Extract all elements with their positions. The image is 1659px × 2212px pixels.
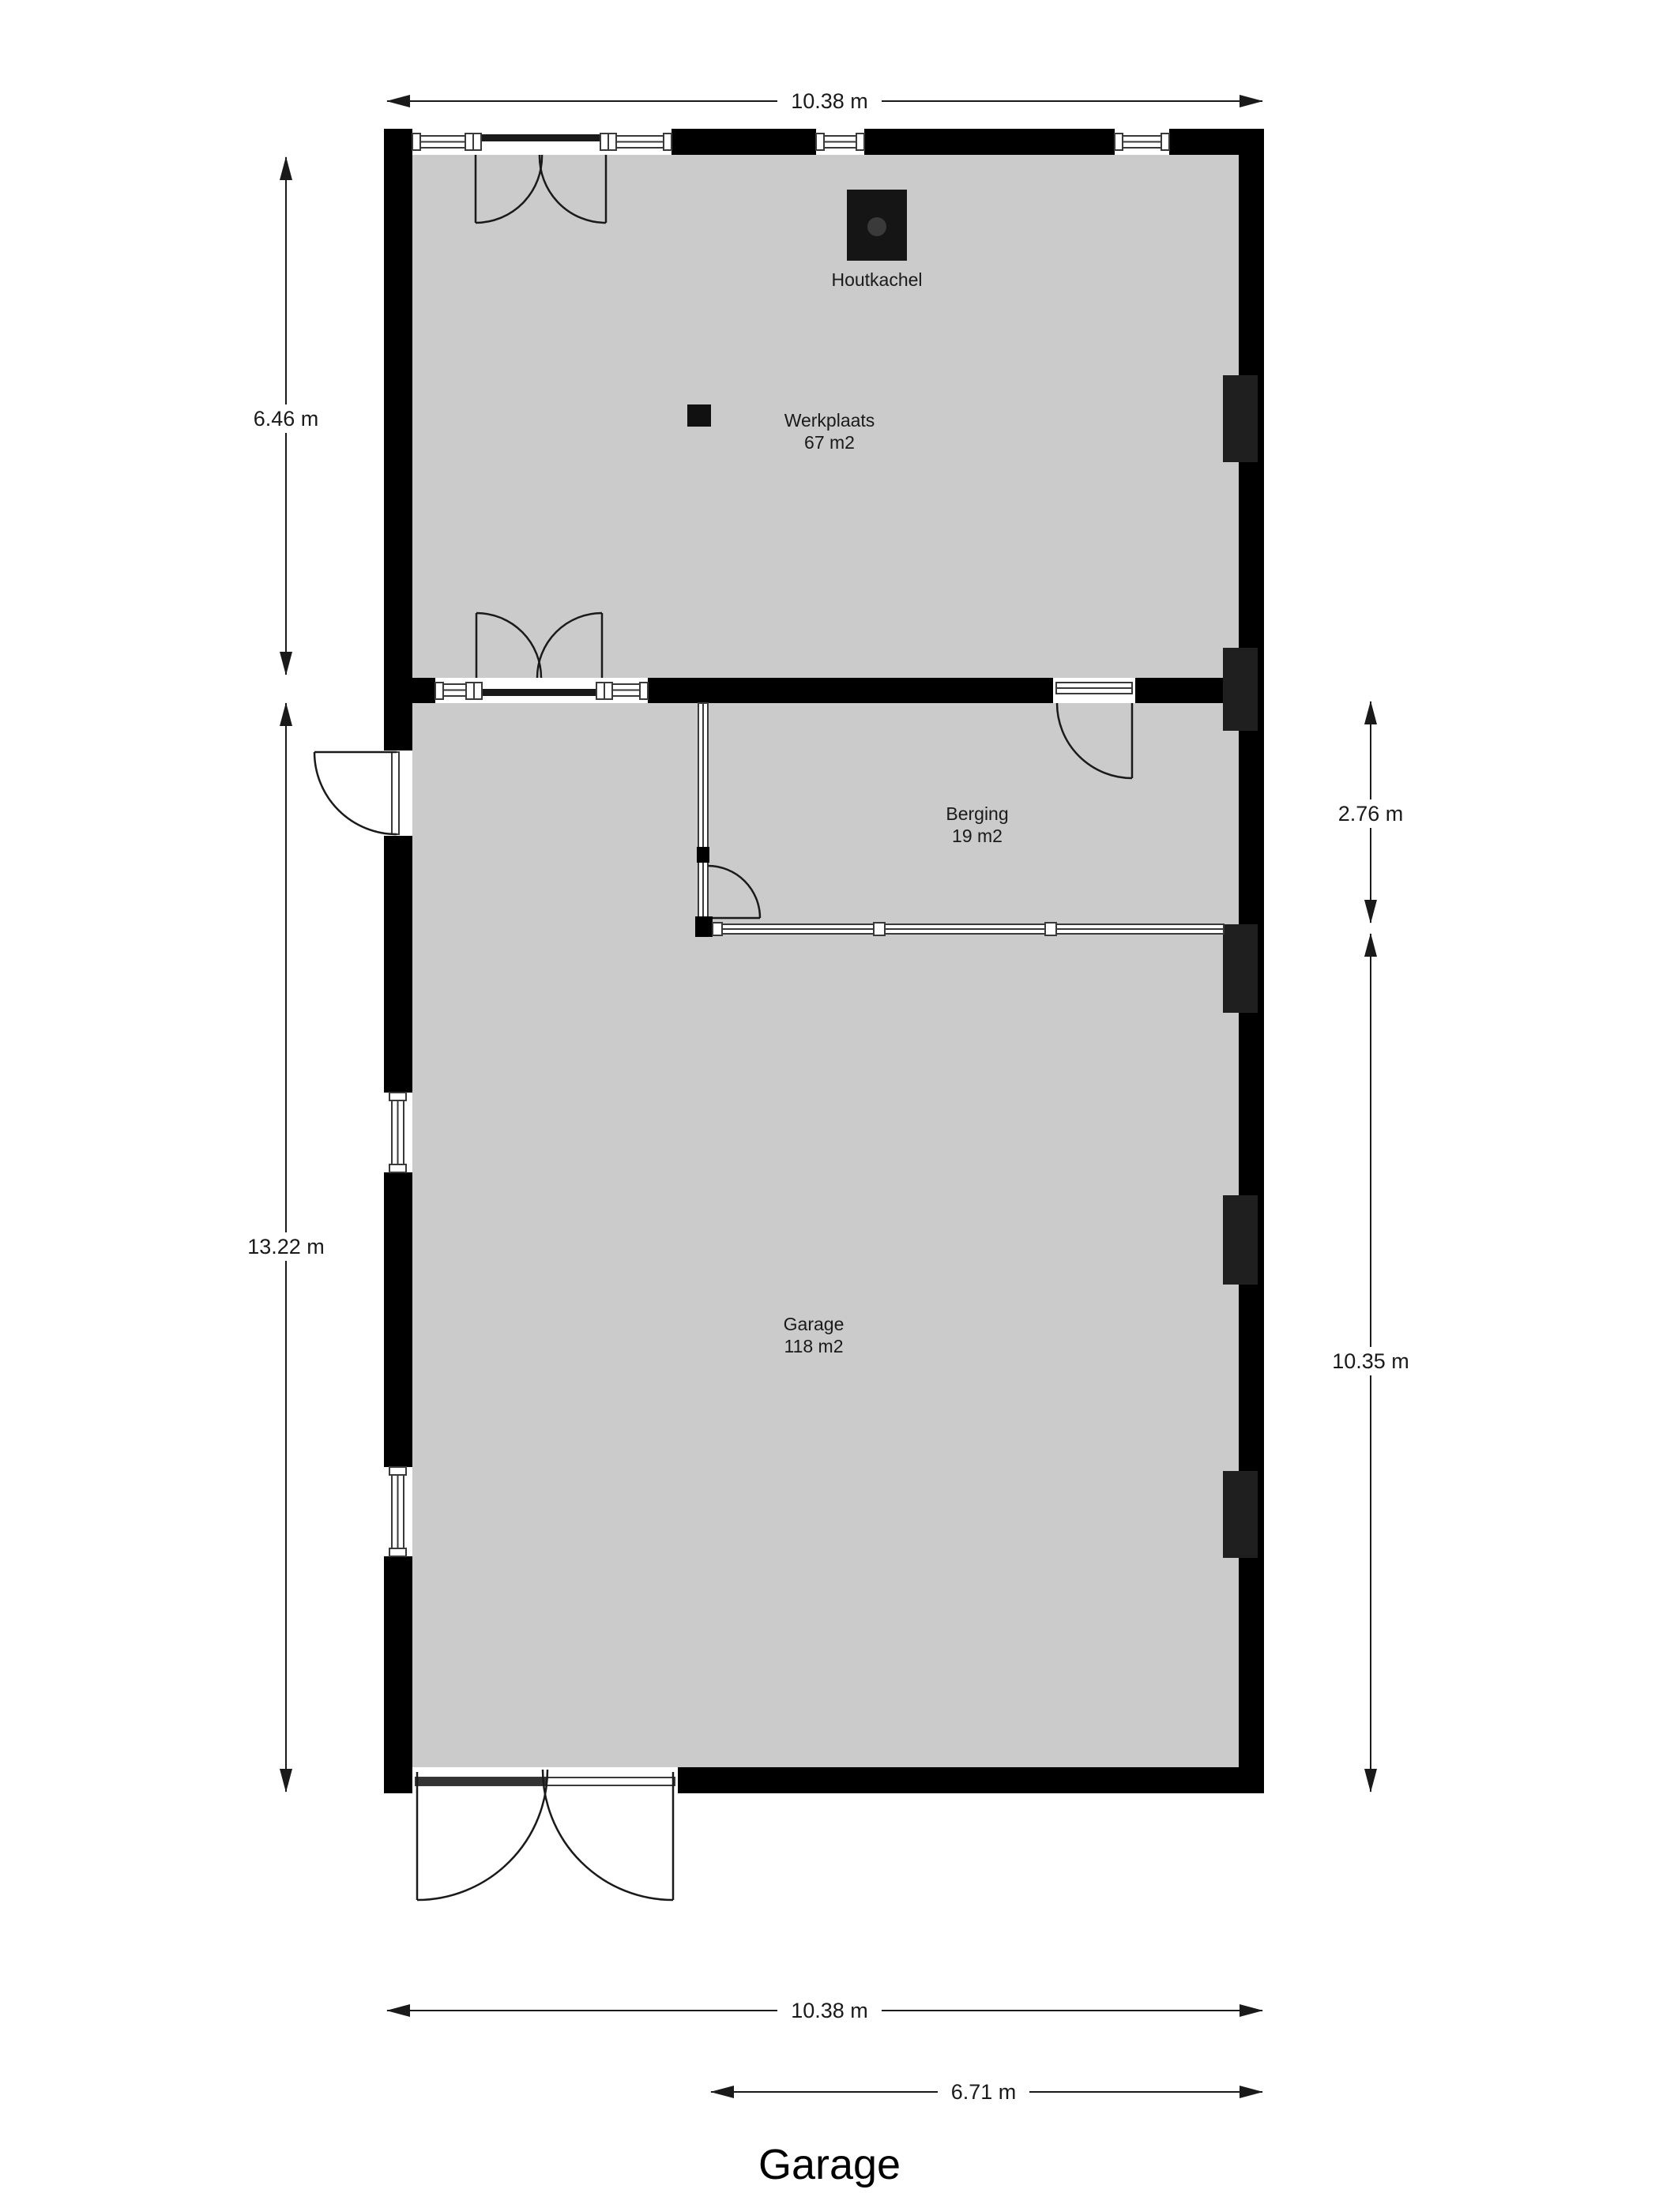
dimension-label: 6.46 m	[254, 407, 319, 431]
wall-left-seg-4	[384, 1556, 412, 1793]
garage-double-door	[412, 1767, 678, 1900]
pilaster-2	[1223, 648, 1258, 731]
pilaster-3	[1223, 924, 1258, 1013]
pilaster-1	[1223, 375, 1258, 462]
wall-top-seg-2	[864, 129, 1115, 155]
pilaster-4	[1223, 1195, 1258, 1285]
left-wall-door	[314, 750, 412, 836]
room-area: 19 m2	[952, 826, 1003, 846]
room-name: Werkplaats	[784, 410, 875, 431]
window	[412, 129, 473, 155]
dimension-label: 2.76 m	[1338, 802, 1404, 826]
window	[816, 129, 864, 155]
wall-left-seg-2	[384, 836, 412, 1093]
partition-post	[697, 847, 709, 863]
wall-middle-seg-1	[384, 678, 435, 703]
page-title: Garage	[758, 2141, 901, 2188]
dimension-bottom-width: 10.38 m	[387, 1996, 1262, 2025]
wall-left-seg-3	[384, 1172, 412, 1467]
dimension-label: 10.38 m	[791, 89, 868, 113]
wood-stove-flue	[867, 217, 886, 236]
dimension-label: 6.71 m	[951, 2080, 1017, 2104]
dimension-label: 10.35 m	[1332, 1349, 1409, 1373]
dimension-left-upper: 6.46 m	[243, 157, 329, 675]
wood-stove-label: Houtkachel	[831, 269, 922, 290]
dimension-right-upper: 2.76 m	[1328, 702, 1413, 923]
wall-bottom-corner-left	[384, 1767, 412, 1793]
window	[608, 129, 671, 155]
room-area: 67 m2	[804, 432, 855, 453]
window	[435, 678, 474, 703]
wall-top-seg-1	[671, 129, 816, 155]
partition-corner-post	[695, 916, 713, 937]
dimension-label: 10.38 m	[791, 1999, 868, 2022]
dimension-left-lower: 13.22 m	[239, 703, 333, 1792]
dimension-top-width: 10.38 m	[387, 87, 1262, 115]
wall-left-seg-1	[384, 129, 412, 750]
window	[604, 678, 648, 703]
room-name: Garage	[784, 1314, 845, 1334]
dimension-bottom-garage-section: 6.71 m	[711, 2078, 1262, 2106]
window	[384, 1093, 412, 1172]
dimension-right-lower: 10.35 m	[1323, 934, 1418, 1792]
pilaster-5	[1223, 1471, 1258, 1558]
dimension-label: 13.22 m	[247, 1235, 325, 1258]
wall-middle-seg-2	[648, 678, 1053, 703]
floor-plan: Houtkachel Werkplaats 67 m2 Berging 19 m…	[0, 0, 1659, 2212]
room-area: 118 m2	[784, 1336, 843, 1356]
window	[384, 1467, 412, 1556]
window	[1115, 129, 1169, 155]
room-name: Berging	[946, 803, 1008, 824]
floor-area	[410, 155, 1239, 1767]
wall-bottom-seg-1	[678, 1767, 1264, 1793]
werkplaats-column	[687, 404, 711, 427]
